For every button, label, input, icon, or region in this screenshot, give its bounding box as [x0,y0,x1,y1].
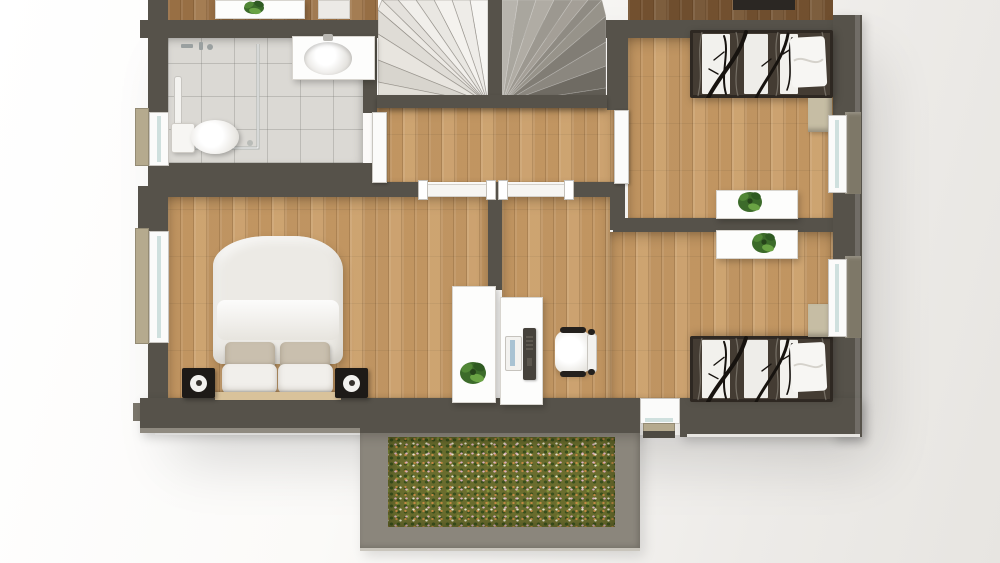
balcony-door-glass [645,418,673,422]
washbasin [304,42,352,75]
bed-top-right [690,30,833,98]
master-bed [211,230,345,400]
strip-item [318,0,350,19]
sideboard-lower-plant [749,229,779,257]
desk-laptop [523,328,536,380]
master-window-glass [157,236,161,338]
chair-backrest [587,333,597,373]
laptop-pad [527,358,532,366]
chair-backrest-tip-top [588,329,595,335]
chair-armrest-top [560,327,586,333]
stair-flight-white [378,0,488,108]
balcony-lawn [388,437,615,527]
strip-plant [240,0,268,18]
stair-center-spine [488,0,502,108]
desk-monitor [505,336,522,371]
bathroom-door [372,112,387,183]
chair-seat [555,331,591,373]
bathroom-window [149,112,169,166]
bottom-wall-left-edge [140,428,360,433]
window-top-right [828,115,847,193]
window-bottom-right-glass [835,264,839,332]
sideboard-upper-plant [735,188,765,216]
hall-door-1-jamb-right [486,180,496,200]
bathroom-window-glass [157,116,161,162]
stair-flight-gray [502,0,606,108]
bottom-wall-right [680,398,862,437]
hallway-floor [377,105,615,182]
partition-wall [488,197,502,290]
hall-door-1-jamb-left [418,180,428,200]
laptop-keys [526,334,533,350]
balcony-door-recess [643,431,675,438]
master-window-sill [135,228,149,344]
under-stair-wall [377,95,607,108]
faucet [323,34,333,41]
sink-counter [292,36,375,80]
stair-right-wall [607,20,628,110]
hall-wall-seg-a [377,182,422,197]
speaker-right [335,368,368,398]
window-br-sill [845,256,861,338]
speaker-left-dot [196,380,202,386]
chair-armrest-bottom [560,371,586,377]
master-pillow-white-right [278,364,333,394]
chair-backrest-tip-bottom [588,369,595,375]
toilet-bowl [191,120,239,154]
master-pillow-white-left [222,364,277,394]
hall-door-2-jamb-left [498,180,508,200]
window-bottom-right [828,259,847,337]
strip-floor-right [628,0,833,21]
window-tr-sill [845,112,861,194]
master-window [149,231,169,343]
window-top-right-glass [835,120,839,188]
strip-dark-furniture [733,0,795,10]
monitor-screen [510,340,515,366]
master-headboard [215,392,341,400]
bottom-wall-right-edge [687,434,860,437]
master-shelf-plant [457,358,489,388]
speaker-left [182,368,215,398]
bed-bottom-right [690,336,833,402]
toilet [171,118,241,156]
bathroom-bottom-wall [152,163,377,197]
speaker-right-dot [349,380,355,386]
hall-door-1 [424,184,490,197]
bathroom-window-sill [135,108,149,166]
hall-door-2-jamb-right [564,180,574,200]
master-bed-fold [217,300,339,340]
floor-plan-render: { "meta": { "description": "3D architect… [0,0,1000,563]
balcony-outer-edge [360,548,640,551]
office-chair [551,325,597,379]
hall-door-2 [504,184,568,197]
bedroom-tr-door [614,110,629,184]
right-wall-outer-edge [855,15,860,437]
balcony-door [640,398,680,438]
